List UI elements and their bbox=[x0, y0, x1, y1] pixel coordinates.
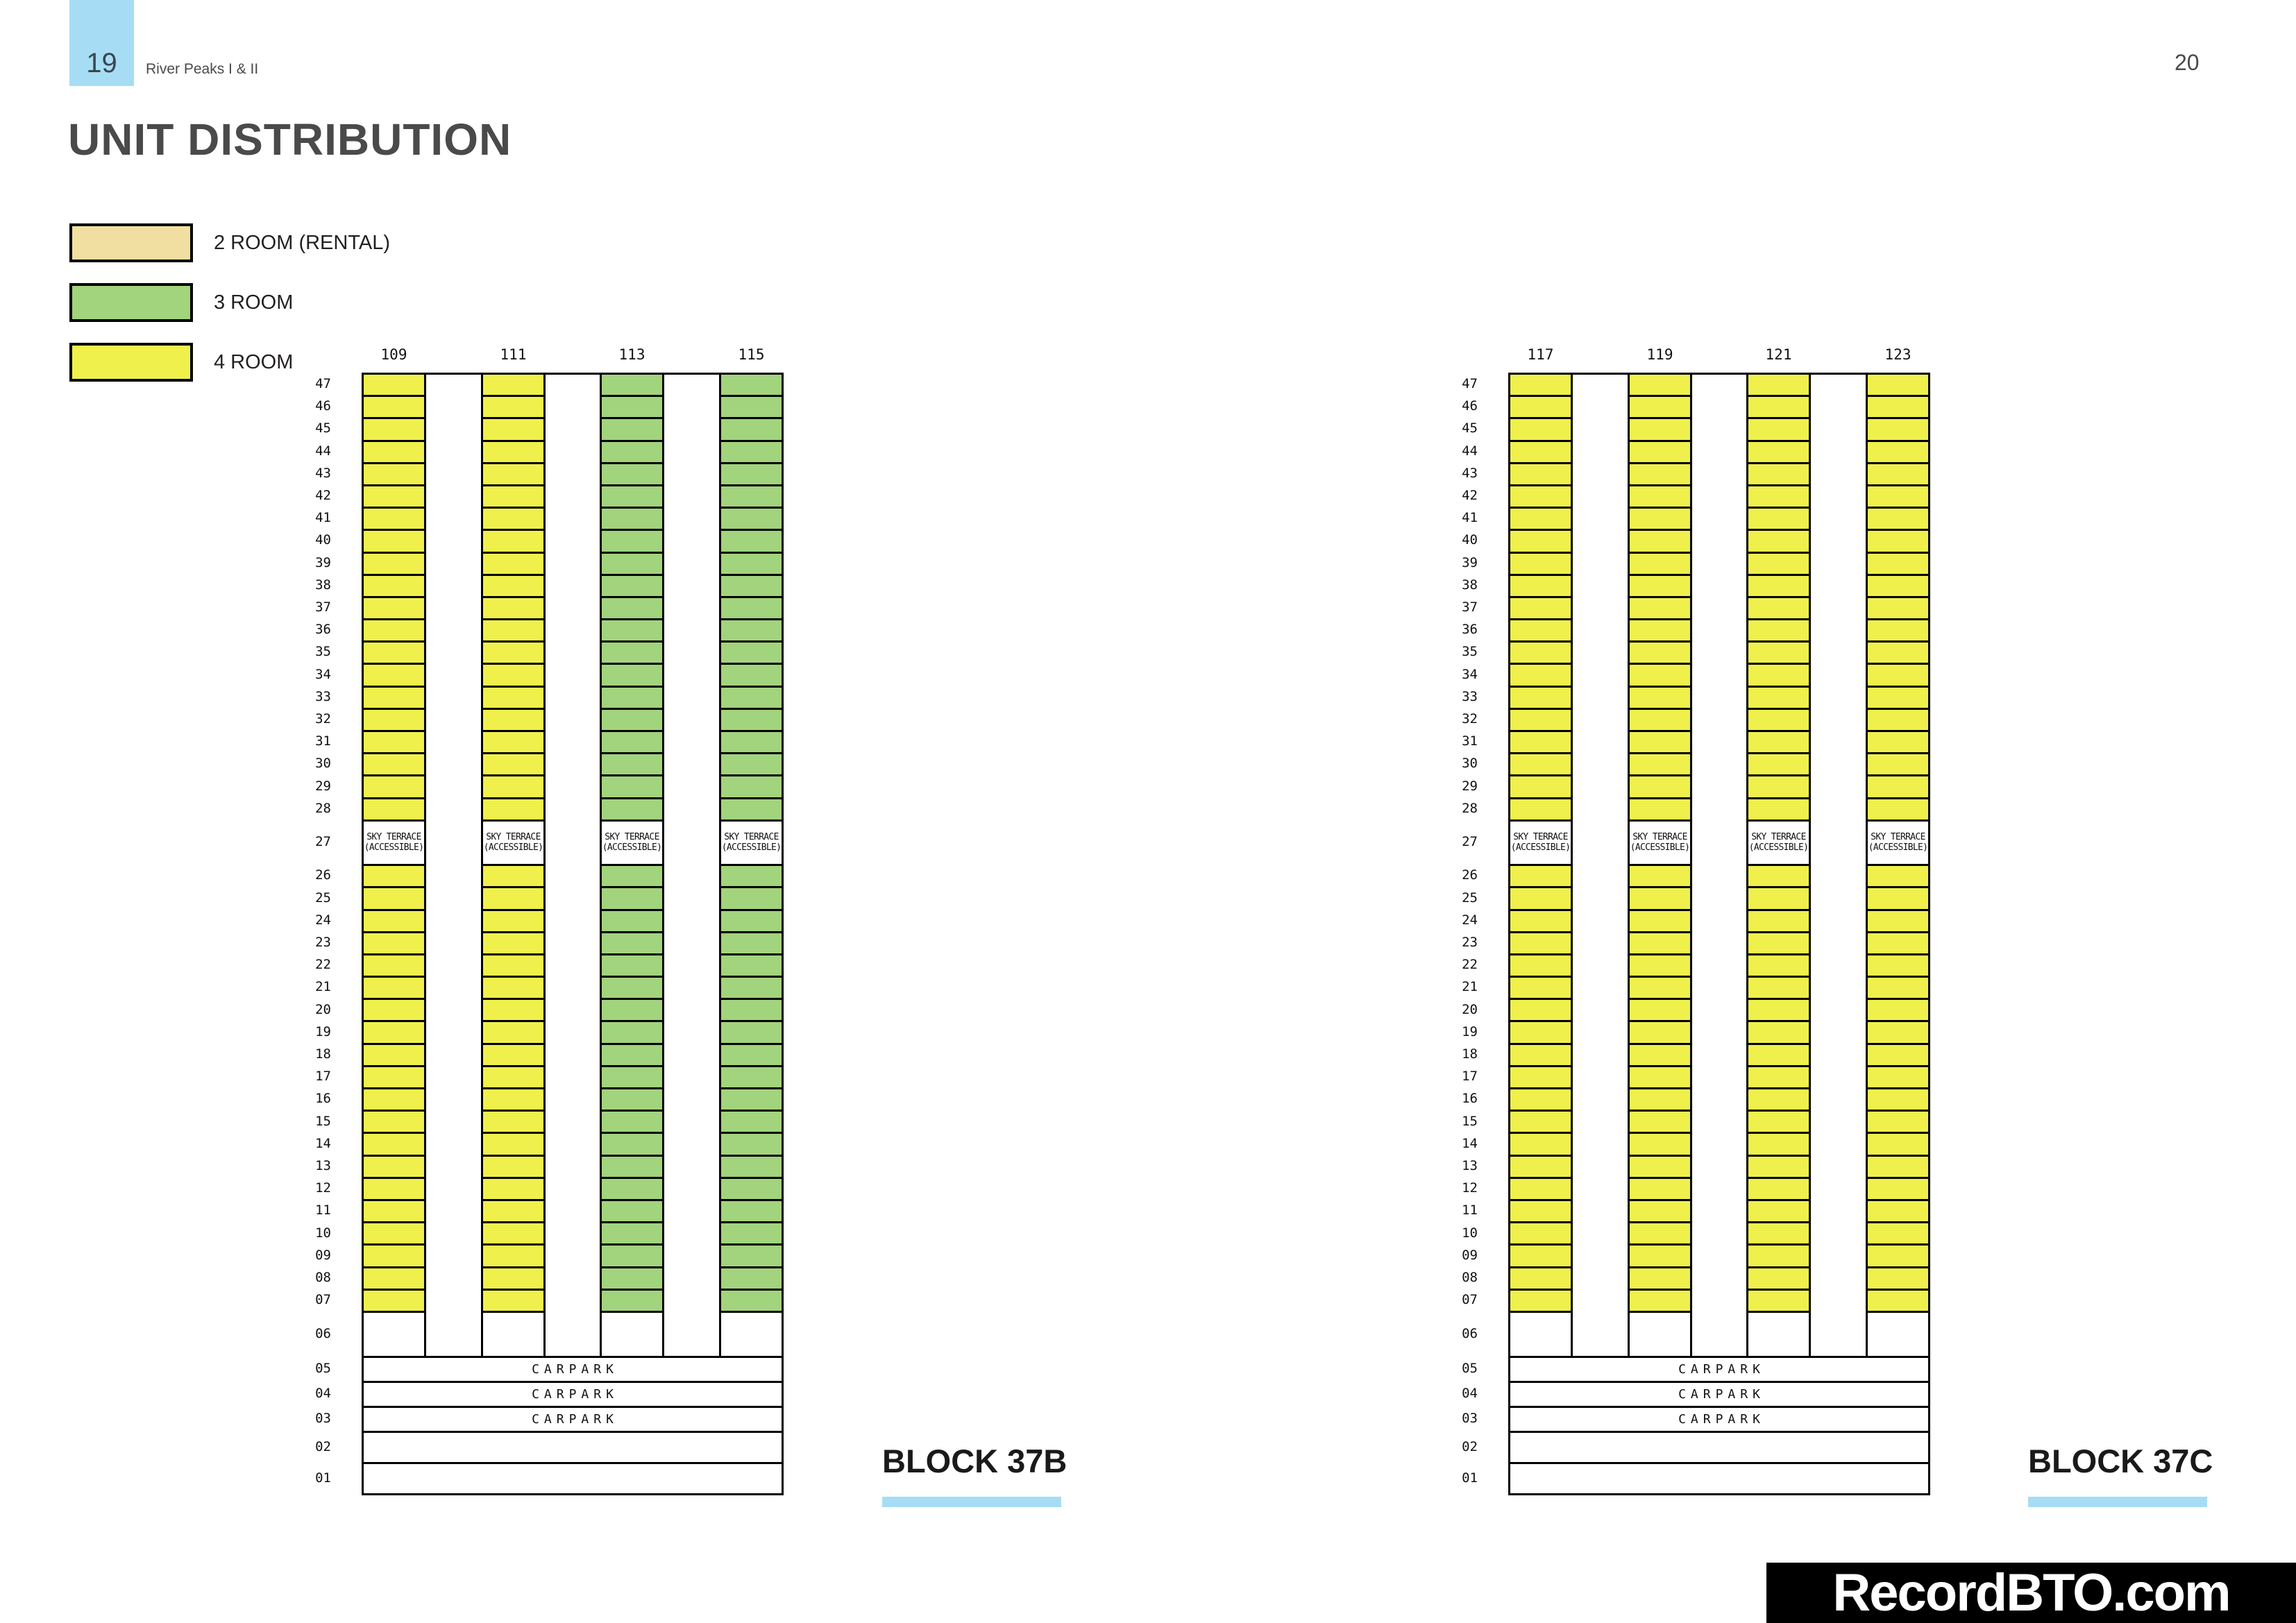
floor-cell bbox=[1868, 909, 1928, 931]
stack-column-109: SKY TERRACE(ACCESSIBLE) bbox=[362, 373, 426, 1356]
floor-label: 08 bbox=[259, 1266, 331, 1289]
floor-cell bbox=[1510, 507, 1571, 529]
floor-label: 25 bbox=[259, 887, 331, 909]
floor-cell bbox=[364, 976, 424, 998]
floor-cell bbox=[721, 440, 782, 462]
floor-cell bbox=[483, 909, 543, 931]
carpark-row: CARPARK bbox=[362, 1406, 784, 1433]
carpark-label: CARPARK bbox=[1673, 1362, 1765, 1377]
floor-cell bbox=[721, 1020, 782, 1042]
sky-terrace-cell: SKY TERRACE(ACCESSIBLE) bbox=[1748, 819, 1809, 864]
floor-cell bbox=[602, 730, 662, 752]
floor-label: 04 bbox=[1406, 1381, 1478, 1406]
floor-cell bbox=[1510, 1266, 1571, 1289]
floor-cell bbox=[1748, 953, 1809, 976]
floor-cell bbox=[1748, 574, 1809, 596]
legend-label-4room: 4 ROOM bbox=[214, 351, 293, 374]
floor-cell bbox=[364, 708, 424, 730]
floor-cell bbox=[1868, 953, 1928, 976]
block-37b-label: BLOCK 37B bbox=[882, 1442, 1061, 1480]
floor-label: 01 bbox=[1406, 1462, 1478, 1493]
stack-column-117: SKY TERRACE(ACCESSIBLE) bbox=[1508, 373, 1573, 1356]
floor-cell bbox=[602, 417, 662, 439]
floor-cell bbox=[1748, 730, 1809, 752]
floor-cell bbox=[483, 976, 543, 998]
floor-cell bbox=[1748, 663, 1809, 685]
floor-cell bbox=[1510, 1043, 1571, 1065]
floor-cell bbox=[1630, 797, 1690, 819]
sky-terrace-cell: SKY TERRACE(ACCESSIBLE) bbox=[721, 819, 782, 864]
base-row bbox=[362, 1462, 784, 1495]
floor-cell bbox=[721, 797, 782, 819]
floor-cell bbox=[1868, 395, 1928, 417]
floor-cell bbox=[483, 417, 543, 439]
floor-cell bbox=[1630, 886, 1690, 908]
floor-cell bbox=[1510, 976, 1571, 998]
floor-cell bbox=[483, 931, 543, 953]
floor-cell bbox=[602, 931, 662, 953]
floor-cell bbox=[1510, 417, 1571, 439]
base-row bbox=[362, 1431, 784, 1464]
floor-label: 29 bbox=[259, 775, 331, 797]
sky-terrace-label-line1: SKY TERRACE bbox=[1871, 832, 1925, 842]
floor-cell bbox=[364, 1177, 424, 1199]
floor-cell bbox=[1630, 752, 1690, 774]
booklet-title: River Peaks I & II bbox=[146, 61, 258, 78]
floor-label: 42 bbox=[259, 484, 331, 507]
floor-cell bbox=[1868, 529, 1928, 551]
floor-cell bbox=[1510, 663, 1571, 685]
floor-cell bbox=[1510, 1221, 1571, 1243]
floor-cell bbox=[721, 1065, 782, 1087]
unit-number-label: 117 bbox=[1508, 342, 1573, 371]
floor-cell bbox=[721, 462, 782, 484]
floor-label-column: 4746454443424140393837363534333231302928… bbox=[1406, 373, 1478, 1495]
floor-cell bbox=[483, 1266, 543, 1289]
floor-cell bbox=[721, 1221, 782, 1243]
floor-cell bbox=[1630, 395, 1690, 417]
floor-cell bbox=[1868, 1243, 1928, 1266]
floor-cell bbox=[483, 1043, 543, 1065]
floor-cell bbox=[364, 663, 424, 685]
floor-cell bbox=[1630, 909, 1690, 931]
floor-cell bbox=[483, 797, 543, 819]
sky-terrace-label-line1: SKY TERRACE bbox=[1632, 832, 1687, 842]
floor-cell bbox=[721, 953, 782, 976]
floor-cell bbox=[721, 976, 782, 998]
floor-label: 07 bbox=[1406, 1289, 1478, 1311]
floor-cell bbox=[1748, 1043, 1809, 1065]
floor-cell bbox=[1510, 1199, 1571, 1221]
floor-cell bbox=[1748, 976, 1809, 998]
floor-cell bbox=[483, 998, 543, 1020]
floor-cell bbox=[364, 752, 424, 774]
floor-cell bbox=[483, 1110, 543, 1132]
floor-cell bbox=[721, 1289, 782, 1311]
floor-cell bbox=[721, 752, 782, 774]
floor-cell bbox=[1630, 440, 1690, 462]
floor-cell bbox=[602, 976, 662, 998]
floor-cell bbox=[602, 552, 662, 574]
floor-cell bbox=[1868, 1289, 1928, 1311]
carpark-row: CARPARK bbox=[1508, 1356, 1930, 1383]
floor-cell bbox=[1630, 774, 1690, 797]
floor-cell bbox=[1630, 708, 1690, 730]
floor-cell bbox=[483, 663, 543, 685]
floor-cell bbox=[602, 507, 662, 529]
floor-label: 18 bbox=[259, 1043, 331, 1065]
floor-cell bbox=[721, 708, 782, 730]
floor-cell bbox=[1868, 640, 1928, 663]
floor-cell bbox=[1868, 1043, 1928, 1065]
floor-cell bbox=[483, 953, 543, 976]
floor-cell bbox=[364, 440, 424, 462]
floor-cell bbox=[1868, 1110, 1928, 1132]
floor-label: 11 bbox=[1406, 1199, 1478, 1221]
floor-cell bbox=[1630, 618, 1690, 640]
floor-cell bbox=[1510, 574, 1571, 596]
floor-label: 21 bbox=[1406, 976, 1478, 998]
floor-cell bbox=[602, 1020, 662, 1042]
legend-swatch-3room bbox=[69, 283, 193, 322]
floor-label: 05 bbox=[1406, 1356, 1478, 1381]
floor-cell bbox=[602, 663, 662, 685]
floor-cell bbox=[1630, 1199, 1690, 1221]
floor-cell bbox=[1510, 752, 1571, 774]
floor-cell bbox=[1510, 909, 1571, 931]
stack-column-119: SKY TERRACE(ACCESSIBLE) bbox=[1628, 373, 1692, 1356]
floor-cell bbox=[1868, 1087, 1928, 1110]
page-number-box: 19 bbox=[69, 0, 134, 86]
base-row bbox=[1508, 1462, 1930, 1495]
floor-cell bbox=[1748, 1177, 1809, 1199]
floor-label: 43 bbox=[1406, 462, 1478, 484]
floor-cell bbox=[1868, 752, 1928, 774]
floor-cell bbox=[364, 774, 424, 797]
floor-cell bbox=[483, 440, 543, 462]
floor-label: 35 bbox=[259, 640, 331, 663]
floor-label: 37 bbox=[259, 596, 331, 618]
floor-cell bbox=[1510, 1087, 1571, 1110]
floor-cell bbox=[1630, 417, 1690, 439]
carpark-platform: CARPARKCARPARKCARPARK bbox=[362, 1356, 784, 1495]
void-level-cell bbox=[483, 1311, 543, 1356]
floor-cell bbox=[602, 1289, 662, 1311]
floor-label: 07 bbox=[259, 1289, 331, 1311]
sky-terrace-label-line2: (ACCESSIBLE) bbox=[364, 842, 424, 853]
floor-cell bbox=[1868, 663, 1928, 685]
sky-terrace-label-line1: SKY TERRACE bbox=[1751, 832, 1805, 842]
floor-cell bbox=[1630, 953, 1690, 976]
floor-cell bbox=[1868, 976, 1928, 998]
floor-cell bbox=[1510, 686, 1571, 708]
legend-swatch-2room bbox=[69, 223, 193, 262]
floor-cell bbox=[1510, 931, 1571, 953]
floor-cell bbox=[364, 640, 424, 663]
floor-cell bbox=[364, 552, 424, 574]
floor-label: 44 bbox=[1406, 440, 1478, 462]
floor-label: 46 bbox=[1406, 395, 1478, 417]
stack-column-111: SKY TERRACE(ACCESSIBLE) bbox=[481, 373, 546, 1356]
sky-terrace-label-line1: SKY TERRACE bbox=[1513, 832, 1567, 842]
floor-cell bbox=[602, 1087, 662, 1110]
floor-cell bbox=[1868, 886, 1928, 908]
floor-cell bbox=[483, 484, 543, 507]
carpark-label: CARPARK bbox=[527, 1412, 618, 1427]
floor-label: 35 bbox=[1406, 640, 1478, 663]
block-37b-caption: BLOCK 37B bbox=[882, 1442, 1061, 1507]
floor-cell bbox=[1630, 730, 1690, 752]
floor-cell bbox=[721, 395, 782, 417]
floor-label: 47 bbox=[259, 373, 331, 395]
floor-cell bbox=[1510, 1243, 1571, 1266]
floor-label: 03 bbox=[259, 1406, 331, 1431]
floor-cell bbox=[1630, 373, 1690, 395]
sky-terrace-cell: SKY TERRACE(ACCESSIBLE) bbox=[1510, 819, 1571, 864]
floor-cell bbox=[483, 730, 543, 752]
floor-cell bbox=[602, 574, 662, 596]
floor-label: 28 bbox=[1406, 797, 1478, 819]
floor-cell bbox=[483, 373, 543, 395]
floor-cell bbox=[721, 1177, 782, 1199]
floor-label: 36 bbox=[1406, 618, 1478, 640]
floor-cell bbox=[483, 1289, 543, 1311]
floor-cell bbox=[483, 1199, 543, 1221]
floor-cell bbox=[1630, 1065, 1690, 1087]
floor-cell bbox=[721, 931, 782, 953]
floor-cell bbox=[1868, 998, 1928, 1020]
floor-label: 27 bbox=[259, 819, 331, 864]
block-37c-underline bbox=[2028, 1497, 2207, 1507]
floor-cell bbox=[483, 1132, 543, 1154]
floor-cell bbox=[1868, 1199, 1928, 1221]
floor-cell bbox=[364, 574, 424, 596]
floor-label-column: 4746454443424140393837363534333231302928… bbox=[259, 373, 331, 1495]
floor-cell bbox=[483, 864, 543, 886]
floor-cell bbox=[483, 507, 543, 529]
floor-cell bbox=[721, 552, 782, 574]
floor-label: 12 bbox=[1406, 1177, 1478, 1199]
floor-label: 46 bbox=[259, 395, 331, 417]
floor-label: 43 bbox=[259, 462, 331, 484]
floor-cell bbox=[1630, 529, 1690, 551]
floor-label: 12 bbox=[259, 1177, 331, 1199]
floor-label: 20 bbox=[1406, 999, 1478, 1021]
floor-cell bbox=[1748, 797, 1809, 819]
floor-cell bbox=[1510, 708, 1571, 730]
floor-cell bbox=[721, 618, 782, 640]
floor-cell bbox=[1510, 1132, 1571, 1154]
floor-cell bbox=[483, 1221, 543, 1243]
floor-cell bbox=[364, 507, 424, 529]
floor-label: 08 bbox=[1406, 1266, 1478, 1289]
void-level-cell bbox=[364, 1311, 424, 1356]
floor-cell bbox=[602, 484, 662, 507]
carpark-label: CARPARK bbox=[1673, 1412, 1765, 1427]
floor-cell bbox=[483, 686, 543, 708]
floor-cell bbox=[1510, 395, 1571, 417]
floor-cell bbox=[602, 708, 662, 730]
carpark-row: CARPARK bbox=[1508, 1406, 1930, 1433]
floor-cell bbox=[1748, 998, 1809, 1020]
floor-cell bbox=[721, 640, 782, 663]
block-37b-underline bbox=[882, 1497, 1061, 1507]
floor-cell bbox=[602, 909, 662, 931]
floor-cell bbox=[721, 417, 782, 439]
floor-cell bbox=[602, 462, 662, 484]
floor-cell bbox=[602, 752, 662, 774]
floor-cell bbox=[364, 931, 424, 953]
sky-terrace-label-line1: SKY TERRACE bbox=[605, 832, 659, 842]
sky-terrace-label-line1: SKY TERRACE bbox=[366, 832, 421, 842]
floor-cell bbox=[602, 953, 662, 976]
floor-label: 40 bbox=[259, 529, 331, 551]
floor-cell bbox=[1868, 730, 1928, 752]
floor-cell bbox=[1510, 462, 1571, 484]
floor-cell bbox=[1630, 1243, 1690, 1266]
floor-label: 26 bbox=[259, 864, 331, 886]
floor-cell bbox=[1748, 1266, 1809, 1289]
floor-cell bbox=[721, 1155, 782, 1177]
sky-terrace-cell: SKY TERRACE(ACCESSIBLE) bbox=[483, 819, 543, 864]
floor-cell bbox=[364, 1155, 424, 1177]
floor-cell bbox=[1630, 1289, 1690, 1311]
floor-cell bbox=[483, 640, 543, 663]
floor-label: 17 bbox=[259, 1065, 331, 1087]
floor-cell bbox=[1630, 663, 1690, 685]
floor-cell bbox=[483, 708, 543, 730]
floor-label: 22 bbox=[259, 953, 331, 976]
floor-cell bbox=[1868, 1020, 1928, 1042]
floor-cell bbox=[364, 417, 424, 439]
floor-cell bbox=[721, 1132, 782, 1154]
stack-column-113: SKY TERRACE(ACCESSIBLE) bbox=[600, 373, 664, 1356]
floor-cell bbox=[602, 618, 662, 640]
floor-cell bbox=[1868, 1132, 1928, 1154]
floor-cell bbox=[1748, 708, 1809, 730]
floor-label: 24 bbox=[259, 909, 331, 931]
floor-label: 41 bbox=[259, 507, 331, 529]
floor-cell bbox=[364, 462, 424, 484]
floor-cell bbox=[721, 484, 782, 507]
floor-cell bbox=[1748, 507, 1809, 529]
sky-terrace-label-line2: (ACCESSIBLE) bbox=[484, 842, 543, 853]
floor-cell bbox=[1510, 998, 1571, 1020]
floor-cell bbox=[483, 1177, 543, 1199]
floor-label: 36 bbox=[259, 618, 331, 640]
floor-label: 32 bbox=[1406, 708, 1478, 730]
floor-label: 13 bbox=[259, 1155, 331, 1177]
floor-cell bbox=[1748, 686, 1809, 708]
floor-cell bbox=[483, 395, 543, 417]
floor-cell bbox=[364, 1199, 424, 1221]
floor-cell bbox=[1630, 1177, 1690, 1199]
floor-cell bbox=[1748, 440, 1809, 462]
floor-cell bbox=[483, 1087, 543, 1110]
void-level-cell bbox=[1630, 1311, 1690, 1356]
floor-cell bbox=[1510, 529, 1571, 551]
floor-cell bbox=[1868, 797, 1928, 819]
floor-label: 23 bbox=[1406, 931, 1478, 953]
floor-label: 19 bbox=[1406, 1021, 1478, 1043]
floor-cell bbox=[1510, 1155, 1571, 1177]
floor-cell bbox=[364, 529, 424, 551]
floor-cell bbox=[1510, 730, 1571, 752]
floor-label: 09 bbox=[259, 1244, 331, 1266]
carpark-row: CARPARK bbox=[362, 1356, 784, 1383]
carpark-row: CARPARK bbox=[362, 1381, 784, 1408]
floor-label: 37 bbox=[1406, 596, 1478, 618]
floor-cell bbox=[483, 462, 543, 484]
floor-label: 32 bbox=[259, 708, 331, 730]
floor-cell bbox=[1510, 484, 1571, 507]
floor-cell bbox=[1748, 484, 1809, 507]
legend-label-3room: 3 ROOM bbox=[214, 291, 293, 314]
floor-cell bbox=[1748, 462, 1809, 484]
watermark-text: RecordBTO.com bbox=[1832, 1563, 2229, 1623]
floor-label: 33 bbox=[1406, 686, 1478, 708]
floor-cell bbox=[483, 1155, 543, 1177]
stack-column-123: SKY TERRACE(ACCESSIBLE) bbox=[1866, 373, 1930, 1356]
legend-label-2room: 2 ROOM (RENTAL) bbox=[214, 232, 390, 255]
floor-cell bbox=[1748, 886, 1809, 908]
sky-terrace-label-line1: SKY TERRACE bbox=[486, 832, 540, 842]
floor-cell bbox=[1748, 1065, 1809, 1087]
floor-cell bbox=[1510, 1065, 1571, 1087]
floor-cell bbox=[1868, 596, 1928, 618]
floor-cell bbox=[721, 909, 782, 931]
floor-label: 39 bbox=[259, 552, 331, 574]
floor-cell bbox=[483, 596, 543, 618]
floor-cell bbox=[1868, 931, 1928, 953]
floor-cell bbox=[1868, 1155, 1928, 1177]
floor-label: 02 bbox=[1406, 1431, 1478, 1462]
floor-cell bbox=[364, 373, 424, 395]
floor-cell bbox=[1748, 1289, 1809, 1311]
unit-number-label: 119 bbox=[1628, 342, 1692, 371]
floor-label: 06 bbox=[259, 1311, 331, 1356]
floor-cell bbox=[1510, 886, 1571, 908]
floor-cell bbox=[721, 1043, 782, 1065]
floor-cell bbox=[721, 574, 782, 596]
floor-label: 38 bbox=[1406, 574, 1478, 596]
floor-cell bbox=[602, 864, 662, 886]
floor-cell bbox=[364, 1087, 424, 1110]
floor-cell bbox=[1510, 1289, 1571, 1311]
void-level-cell bbox=[602, 1311, 662, 1356]
floor-cell bbox=[483, 618, 543, 640]
floor-cell bbox=[1510, 1177, 1571, 1199]
floor-cell bbox=[1748, 1155, 1809, 1177]
floor-cell bbox=[1630, 976, 1690, 998]
void-level-cell bbox=[1510, 1311, 1571, 1356]
floor-label: 13 bbox=[1406, 1155, 1478, 1177]
floor-cell bbox=[1868, 552, 1928, 574]
floor-cell bbox=[1748, 417, 1809, 439]
block-37c-diagram: 117SKY TERRACE(ACCESSIBLE)119SKY TERRACE… bbox=[1508, 373, 1930, 1495]
floor-label: 45 bbox=[1406, 417, 1478, 439]
floor-cell bbox=[483, 529, 543, 551]
floor-cell bbox=[602, 1243, 662, 1266]
floor-cell bbox=[1510, 440, 1571, 462]
floor-cell bbox=[721, 507, 782, 529]
floor-cell bbox=[602, 998, 662, 1020]
floor-label: 19 bbox=[259, 1021, 331, 1043]
floor-cell bbox=[602, 774, 662, 797]
sky-terrace-label-line2: (ACCESSIBLE) bbox=[1511, 842, 1571, 853]
floor-label: 23 bbox=[259, 931, 331, 953]
floor-cell bbox=[721, 1199, 782, 1221]
